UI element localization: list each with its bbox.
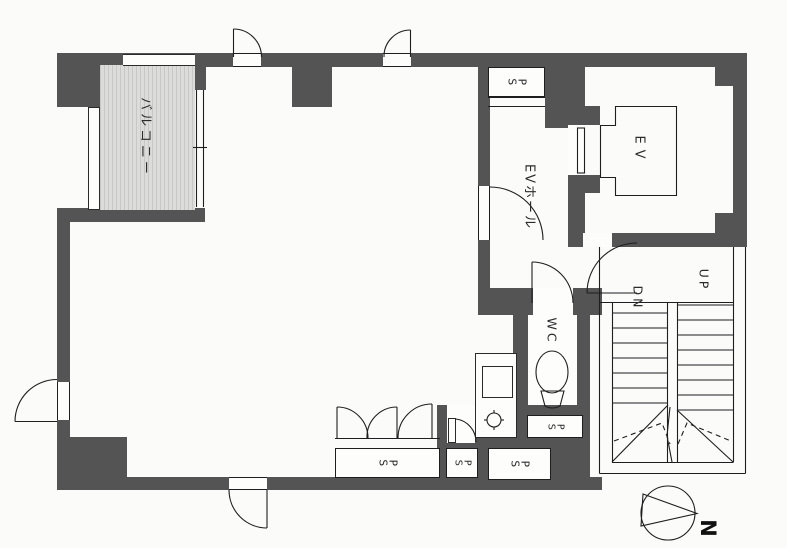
north-label: N: [696, 519, 720, 537]
compass-icon: [641, 486, 697, 540]
balcony-label: バルコニー: [138, 97, 157, 177]
floor-plan: P S P S P S P S P S: [0, 0, 787, 548]
stairs: [600, 247, 746, 474]
up-label: UP: [697, 269, 712, 292]
ev-label: EV: [632, 135, 647, 164]
drain-icon: [484, 410, 504, 430]
ev-hall-label: EVホール: [522, 164, 541, 230]
shelf-lines: [488, 98, 545, 107]
plan-linework: [0, 0, 787, 548]
ev-car-icon: [578, 107, 677, 196]
toilet-icon: [536, 351, 568, 408]
door-arc: [15, 29, 637, 528]
balcony-window-icon: [193, 90, 207, 207]
dn-label: DN: [631, 286, 646, 311]
wc-label: WC: [545, 317, 560, 344]
